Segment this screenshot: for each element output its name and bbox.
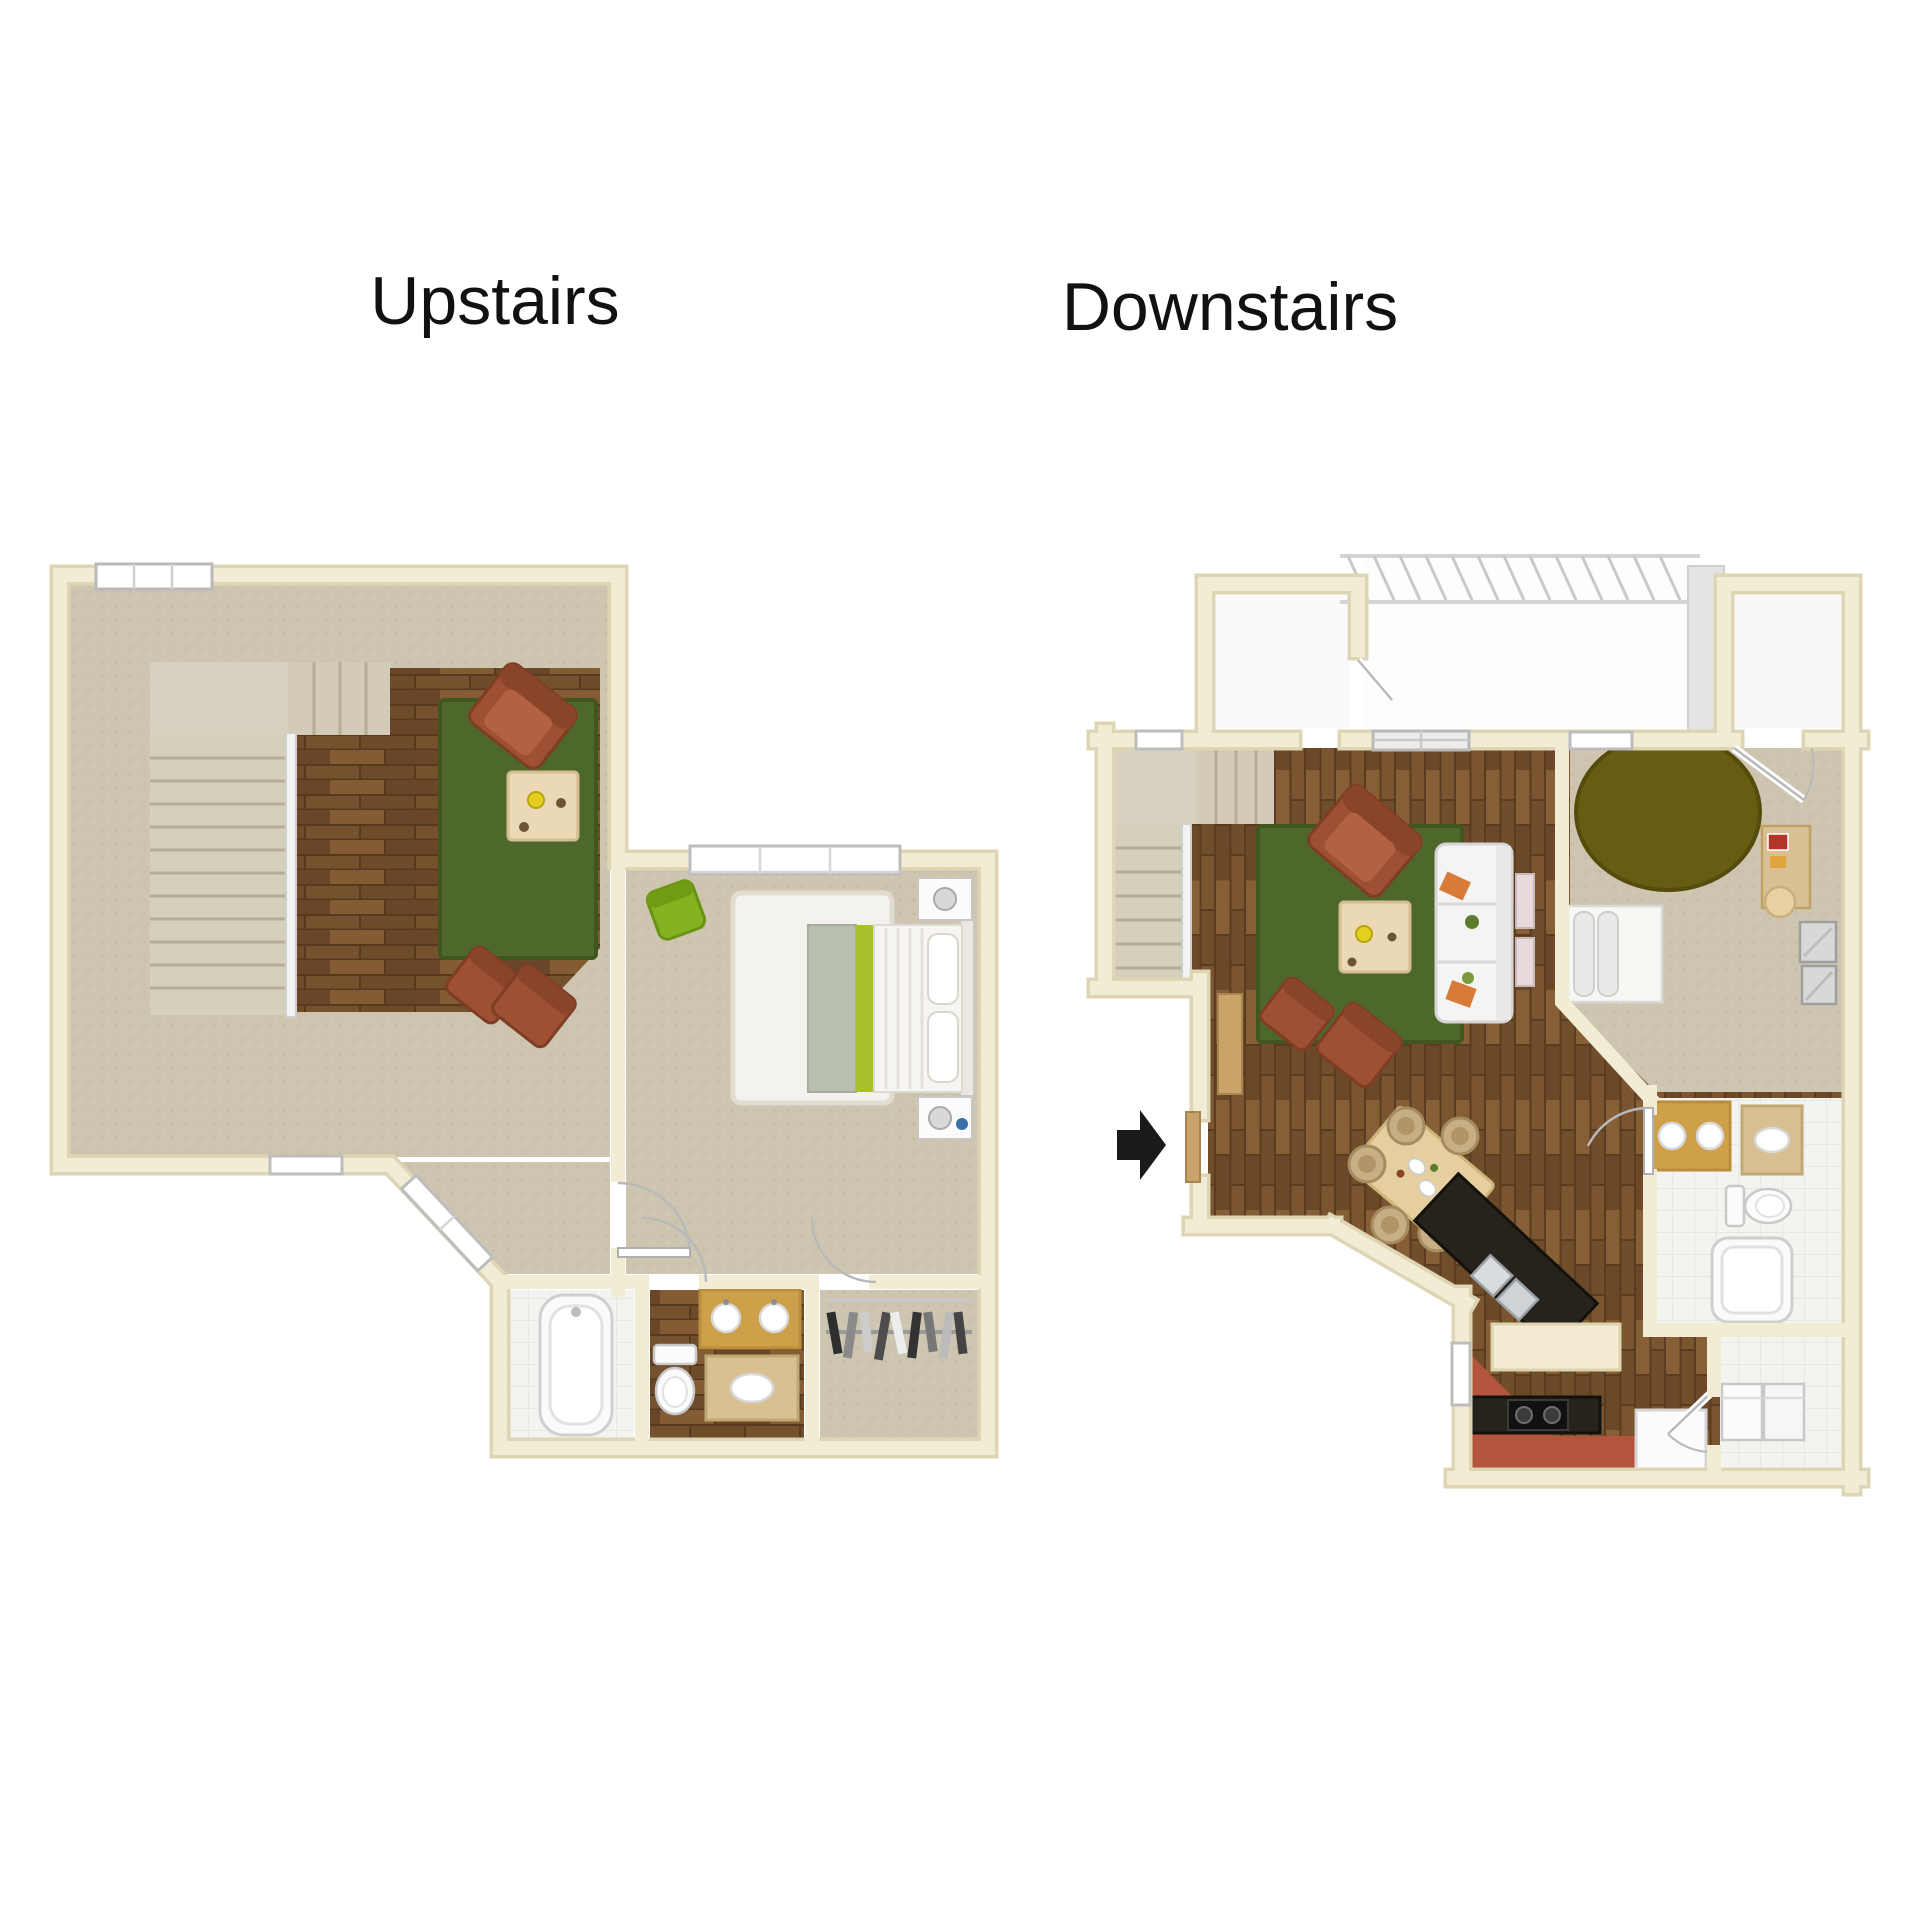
kitchen-bar-counter — [1492, 1324, 1620, 1370]
storage-room-floor — [1213, 592, 1350, 728]
sink-basin — [1659, 1123, 1685, 1149]
table-decor — [556, 798, 566, 808]
patio-sliding-door — [1373, 731, 1469, 750]
vanity-oval-sink — [1742, 1106, 1802, 1174]
table-decor — [1348, 958, 1357, 967]
skylight-window — [96, 564, 212, 589]
toilet — [654, 1345, 696, 1414]
table-bowl — [1356, 926, 1372, 942]
sink-basin — [712, 1304, 740, 1332]
sink-basin — [731, 1374, 773, 1402]
living-room-window — [1136, 731, 1182, 749]
washer — [1722, 1384, 1762, 1440]
bedroom-window — [1570, 732, 1632, 749]
vanity-double-sink — [1652, 1102, 1730, 1170]
pillow — [928, 1012, 958, 1082]
washer-dryer — [1722, 1384, 1804, 1440]
stair-railing — [286, 733, 296, 1017]
round-rug — [1576, 734, 1760, 890]
decor-item — [956, 1118, 968, 1130]
bathtub — [1712, 1238, 1792, 1322]
picture-frames — [1800, 922, 1836, 1004]
table-decor — [519, 822, 529, 832]
bedroom-window — [690, 846, 900, 874]
sink-basin — [1755, 1128, 1789, 1152]
closet-floor — [1732, 592, 1844, 728]
bathtub — [540, 1295, 612, 1435]
stove — [1508, 1400, 1568, 1430]
plant — [1462, 972, 1474, 984]
bolster-pillow — [1574, 912, 1594, 996]
sink-basin — [760, 1304, 788, 1332]
pillow — [928, 934, 958, 1004]
stair-railing — [1182, 824, 1191, 992]
table-decor — [1388, 933, 1397, 942]
sofa — [1436, 844, 1512, 1022]
nightstand — [918, 878, 972, 920]
desk-item — [1768, 834, 1788, 850]
entry-door — [1186, 1112, 1200, 1182]
table-lamp — [929, 1107, 951, 1129]
stool — [1765, 887, 1795, 917]
desk-item — [1770, 856, 1786, 868]
refrigerator — [1636, 1410, 1706, 1470]
downstairs-floor-plan — [1097, 556, 1860, 1486]
vanity-oval-sink — [706, 1356, 798, 1420]
nightstand — [918, 1097, 972, 1139]
sink-basin — [1697, 1123, 1723, 1149]
bolster-pillow — [1598, 912, 1618, 996]
toilet — [1726, 1186, 1791, 1226]
vanity-double-sink — [700, 1290, 800, 1348]
bookcase — [1218, 994, 1242, 1094]
loft-window — [270, 1156, 342, 1174]
table-lamp — [934, 888, 956, 910]
plant — [1465, 915, 1479, 929]
bed — [1568, 906, 1662, 1002]
desk — [1762, 826, 1810, 917]
table-bowl — [528, 792, 544, 808]
dryer — [1764, 1384, 1804, 1440]
tub-faucet — [571, 1307, 581, 1317]
floor-plan-canvas — [0, 0, 1920, 1920]
upstairs-floor-plan — [60, 564, 988, 1448]
kitchen-window — [1452, 1343, 1470, 1405]
bed — [808, 918, 974, 1096]
coffee-table — [508, 772, 578, 840]
entry-arrow-icon — [1117, 1110, 1166, 1180]
